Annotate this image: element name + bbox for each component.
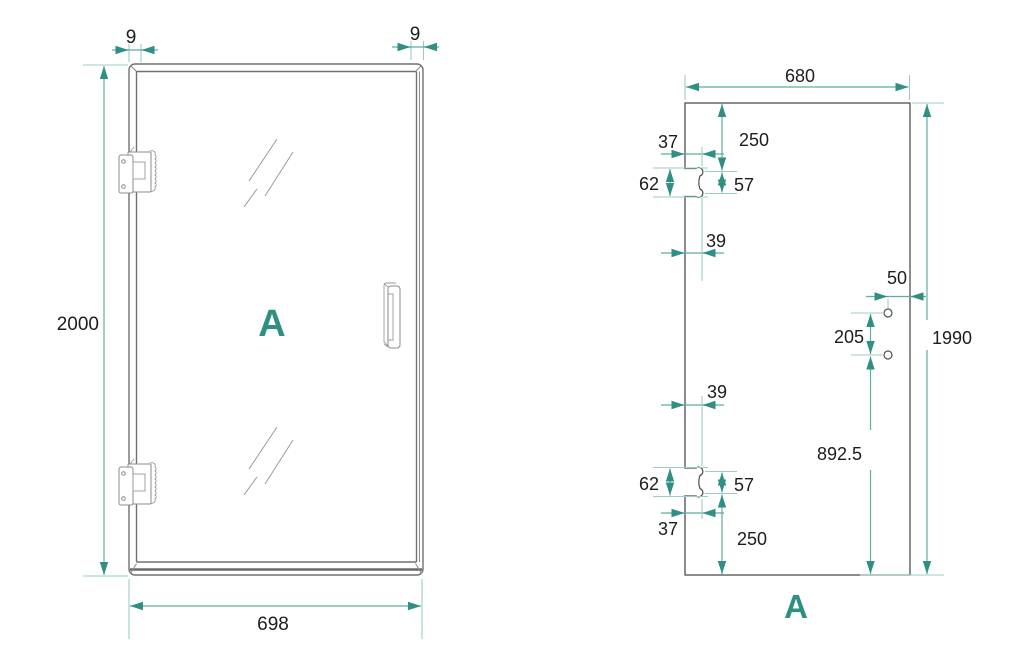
dim-label-892-5: 892.5 (817, 444, 862, 464)
dim-label-1990: 1990 (932, 328, 972, 348)
door-handle (384, 283, 400, 348)
dim-label-57-top: 57 (734, 175, 754, 195)
handle-drill-holes (884, 309, 892, 359)
door-elevation-view: 2000 698 9 9 A (57, 24, 439, 639)
bottom-hinge-cutout (684, 467, 703, 497)
dim-hinge-inset-bottom: 37 (658, 499, 724, 539)
dim-cutout-width-bottom: 39 (661, 382, 727, 466)
bottom-hinge (119, 459, 156, 505)
dim-label-50: 50 (887, 268, 907, 288)
dim-handle-hole-spacing: 205 (834, 313, 884, 355)
glass-panel-view: 680 1990 250 57 (639, 66, 972, 625)
dim-label-9-right: 9 (410, 24, 421, 45)
dim-profile-left: 9 (112, 27, 158, 62)
dim-label-680: 680 (785, 66, 815, 86)
technical-drawing-canvas: 2000 698 9 9 A (0, 0, 1024, 663)
dim-hole-spacing-bottom: 57 (705, 472, 754, 496)
dim-handle-to-bottom: 892.5 (817, 357, 871, 575)
dim-label-2000: 2000 (57, 314, 99, 335)
dim-handle-edge-offset: 50 (866, 268, 926, 308)
dim-label-39-bottom: 39 (707, 382, 727, 402)
dim-glass-height: 1990 (860, 103, 972, 575)
dim-hole-spacing-top: 57 (705, 173, 754, 196)
dim-label-62-bottom: 62 (639, 474, 659, 494)
dim-profile-right: 9 (392, 24, 439, 60)
dim-top-to-hinge: 250 (705, 104, 769, 172)
dim-hinge-inset-top: 37 (658, 132, 724, 166)
dim-label-37-top: 37 (658, 132, 678, 152)
dim-label-62-top: 62 (639, 174, 659, 194)
dim-bottom-to-hinge: 250 (722, 495, 767, 575)
top-hinge-cutout (684, 168, 703, 198)
dim-label-250-bottom: 250 (737, 529, 767, 549)
dim-glass-width: 680 (685, 66, 910, 100)
dim-cutout-width-top: 39 (661, 198, 726, 281)
view-label-left: A (258, 303, 285, 345)
dim-label-39-top: 39 (706, 231, 726, 251)
dim-label-9-left: 9 (126, 27, 137, 48)
dim-total-height: 2000 (57, 65, 128, 576)
view-label-right: A (784, 588, 808, 625)
dim-label-698: 698 (257, 614, 289, 635)
dim-label-57-bottom: 57 (734, 475, 754, 495)
dim-total-width: 698 (129, 579, 422, 639)
technical-drawing-page: 2000 698 9 9 A (0, 0, 1024, 663)
dim-label-37-bottom: 37 (658, 519, 678, 539)
top-hinge (119, 147, 156, 193)
glass-panel-outline (685, 103, 910, 575)
dim-label-250-top: 250 (739, 130, 769, 150)
dim-label-205: 205 (834, 327, 864, 347)
